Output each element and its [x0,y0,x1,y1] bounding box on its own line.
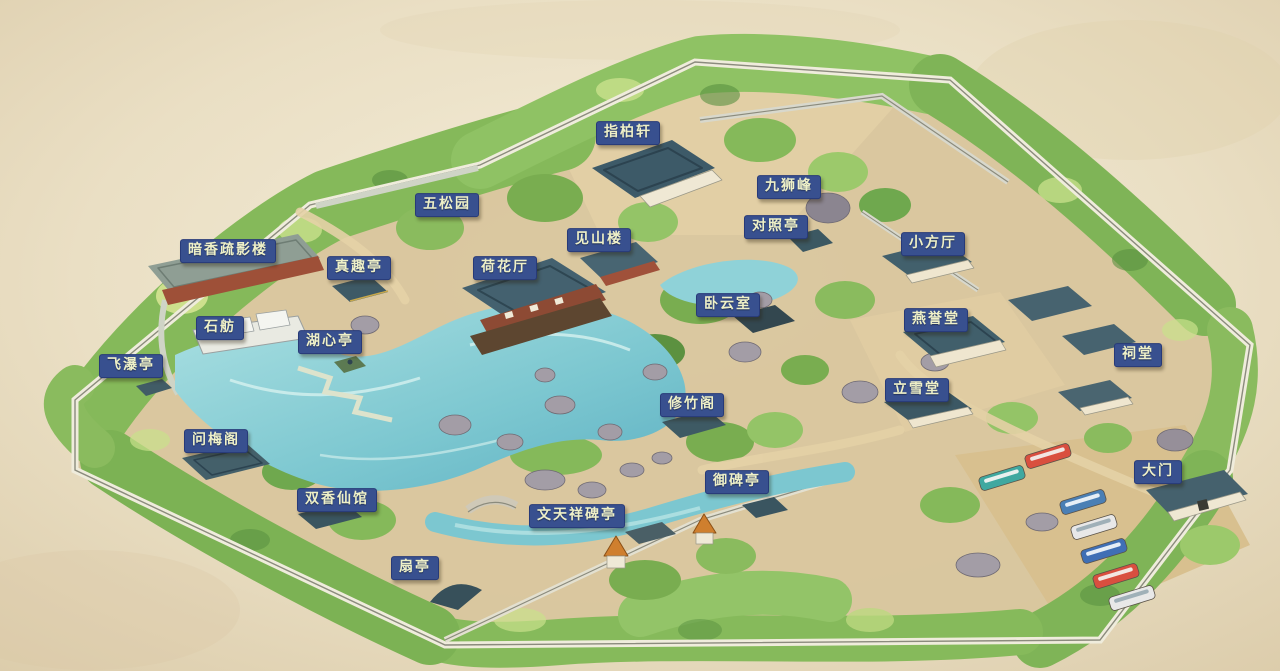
map-label[interactable]: 真趣亭 [327,256,391,280]
map-label[interactable]: 湖心亭 [298,330,362,354]
map-label[interactable]: 对照亭 [744,215,808,239]
map-label[interactable]: 小方厅 [901,232,965,256]
map-label[interactable]: 飞瀑亭 [99,354,163,378]
map-label[interactable]: 大门 [1134,460,1182,484]
map-label[interactable]: 暗香疏影楼 [180,239,276,263]
map-label[interactable]: 祠堂 [1114,343,1162,367]
map-label[interactable]: 九狮峰 [757,175,821,199]
map-label[interactable]: 修竹阁 [660,393,724,417]
map-label[interactable]: 御碑亭 [705,470,769,494]
map-label[interactable]: 指柏轩 [596,121,660,145]
map-label[interactable]: 扇亭 [391,556,439,580]
garden-map: 指柏轩九狮峰五松园对照亭小方厅见山楼暗香疏影楼真趣亭荷花厅卧云室燕誉堂石舫湖心亭… [0,0,1280,671]
map-label[interactable]: 见山楼 [567,228,631,252]
map-label[interactable]: 五松园 [415,193,479,217]
map-label[interactable]: 石舫 [196,316,244,340]
map-label[interactable]: 燕誉堂 [904,308,968,332]
map-label[interactable]: 双香仙馆 [297,488,377,512]
map-label[interactable]: 立雪堂 [885,378,949,402]
map-label[interactable]: 文天祥碑亭 [529,504,625,528]
map-label[interactable]: 问梅阁 [184,429,248,453]
map-label[interactable]: 荷花厅 [473,256,537,280]
map-labels: 指柏轩九狮峰五松园对照亭小方厅见山楼暗香疏影楼真趣亭荷花厅卧云室燕誉堂石舫湖心亭… [0,0,1280,671]
map-label[interactable]: 卧云室 [696,293,760,317]
